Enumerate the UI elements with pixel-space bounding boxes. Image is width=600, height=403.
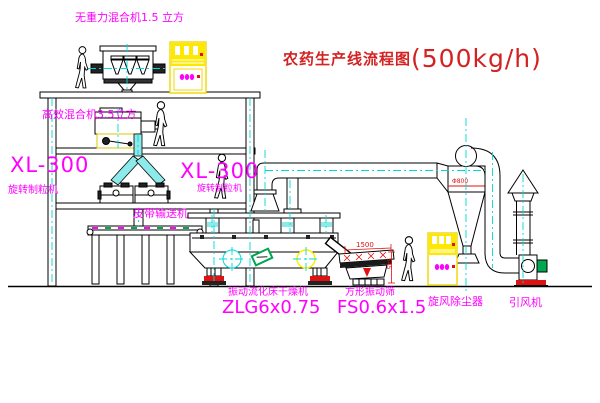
fan-motor xyxy=(537,260,547,272)
title-capacity: (500kg/h) xyxy=(411,44,542,73)
cyclone-outlet-flare xyxy=(455,254,479,263)
title-text: 农药生产线流程图 xyxy=(283,48,411,69)
drawing-title: 农药生产线流程图 (500kg/h) xyxy=(283,44,542,73)
dimension-cyclone-diameter: Φ800 xyxy=(452,179,468,185)
label-high-efficiency-mixer: 高效混合机3.5立方 xyxy=(42,109,137,120)
conveyor-leg xyxy=(117,235,124,284)
drawing-canvas: 无重力混合机1.5 立方 农药生产线流程图 (500kg/h) 高效混合机3.5… xyxy=(0,0,600,403)
label-gravity-mixer: 无重力混合机1.5 立方 xyxy=(75,12,184,23)
dryer-top-rail xyxy=(188,213,340,218)
conveyor-leg xyxy=(142,235,149,284)
label-sieve-model: FS0.6x1.5 xyxy=(337,299,426,317)
granulator-right xyxy=(135,183,170,203)
dimension-sieve-height: 545 xyxy=(385,258,391,269)
induced-draft-fan xyxy=(508,170,548,286)
mixer-funnels xyxy=(111,56,149,74)
indicator-dot xyxy=(200,53,203,56)
gravity-mixer xyxy=(91,46,165,92)
label-granulator-right-model: XL-300 xyxy=(180,161,259,182)
belt-conveyor xyxy=(87,226,203,284)
floor-slab-1 xyxy=(40,92,260,98)
person-figure xyxy=(402,237,415,281)
duct-droppipe xyxy=(287,178,298,209)
control-cabinet-1 xyxy=(170,42,206,93)
granulator-left xyxy=(98,183,133,203)
dryer-ports xyxy=(206,218,333,233)
fan-base xyxy=(516,280,546,285)
conveyor-leg xyxy=(167,235,174,284)
dimension-sieve-width: 1500 xyxy=(356,242,374,249)
label-cyclone: 旋风除尘器 xyxy=(428,296,483,307)
person-figure xyxy=(154,102,167,146)
sieve-base xyxy=(353,279,384,285)
cyclone-reducer xyxy=(437,163,448,192)
fluid-bed-dryer xyxy=(188,213,340,285)
label-granulator-left-model: XL-300 xyxy=(10,155,89,176)
indicator-dot xyxy=(452,243,455,246)
conveyor-leg xyxy=(92,235,99,284)
person-figure xyxy=(76,47,88,88)
label-granulator-left-name: 旋转制粒机 xyxy=(8,186,58,196)
label-dryer-model: ZLG6x0.75 xyxy=(222,299,321,317)
dryer-foot-right xyxy=(308,268,332,285)
label-belt-conveyor: 皮带输送机 xyxy=(133,208,188,219)
control-cabinet-2 xyxy=(428,233,457,285)
label-granulator-right-name: 旋转制粒机 xyxy=(197,185,242,194)
label-fan: 引风机 xyxy=(509,297,542,308)
